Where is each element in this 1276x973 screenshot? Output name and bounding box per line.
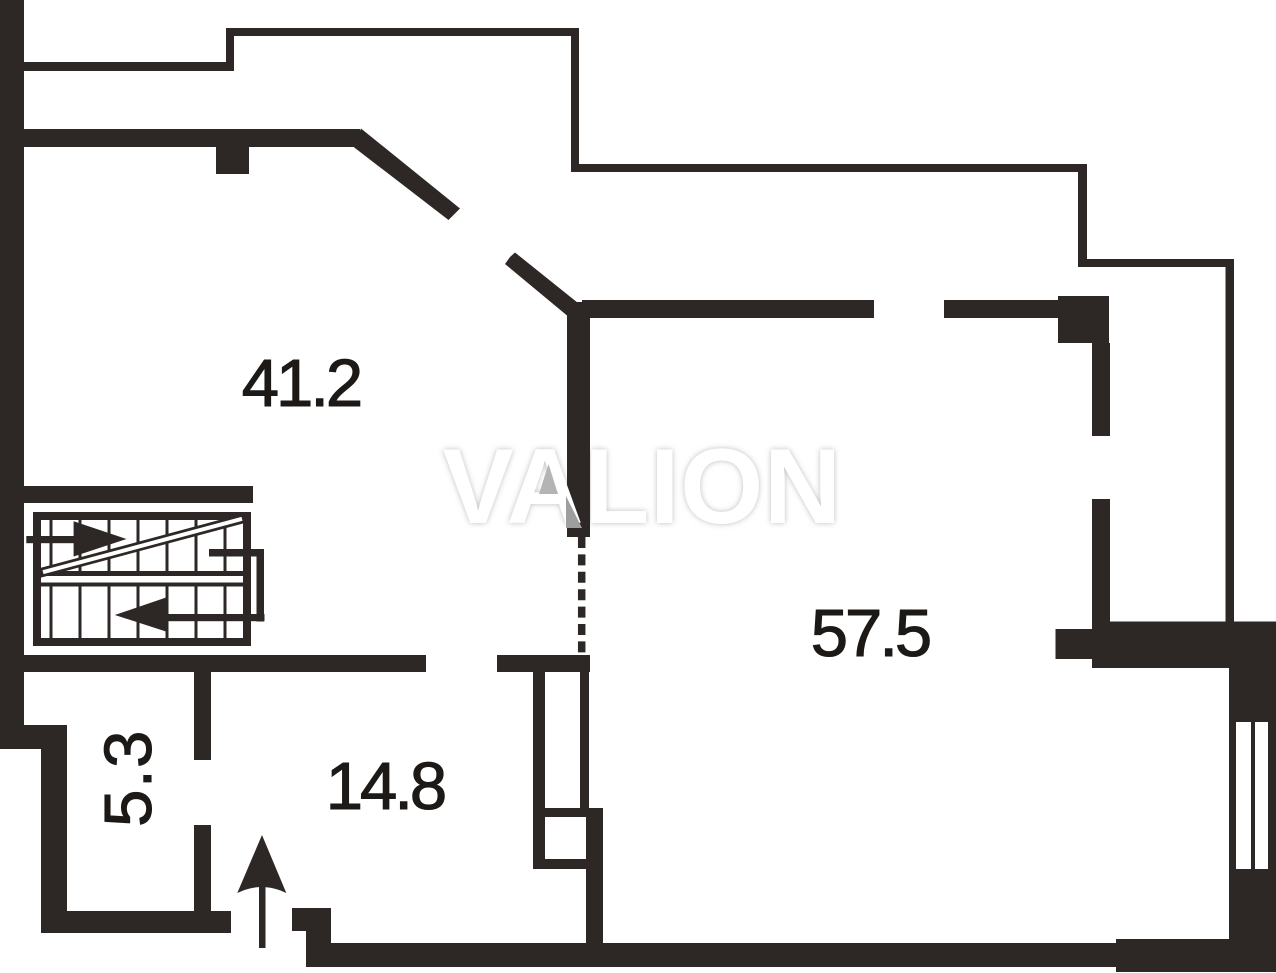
svg-text:VALION: VALION — [442, 426, 841, 546]
svg-text:57.5: 57.5 — [811, 596, 930, 671]
svg-text:41.2: 41.2 — [242, 346, 360, 421]
svg-text:14.8: 14.8 — [326, 749, 445, 824]
svg-text:5.3: 5.3 — [91, 729, 166, 827]
